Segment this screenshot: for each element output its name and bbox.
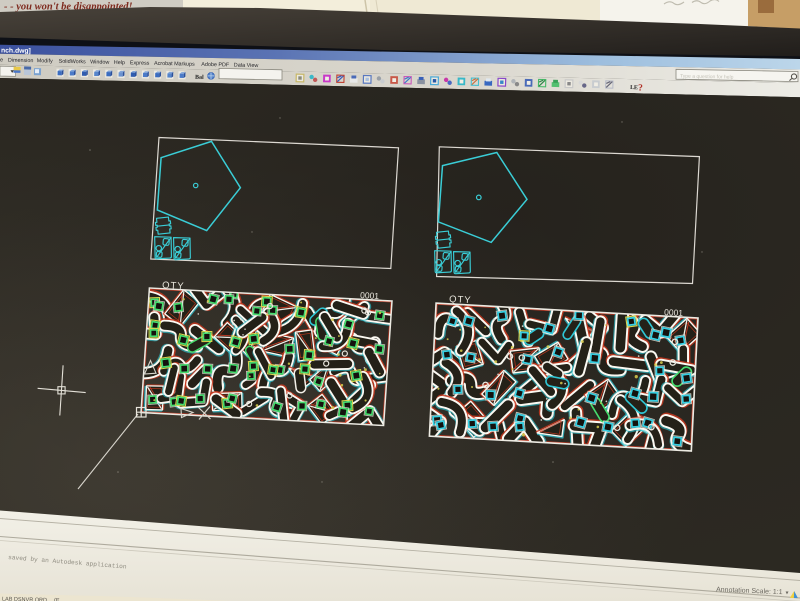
- svg-text:nch.dwg]: nch.dwg]: [1, 47, 31, 55]
- svg-text:Bal: Bal: [195, 75, 204, 81]
- svg-text:Express: Express: [130, 60, 150, 66]
- svg-text:Type a question for help: Type a question for help: [680, 74, 734, 81]
- svg-text:SolidWorks: SolidWorks: [59, 59, 87, 66]
- svg-text:e: e: [0, 57, 3, 63]
- svg-text:Adobe PDF: Adobe PDF: [201, 62, 230, 69]
- svg-text:Window: Window: [90, 59, 109, 65]
- svg-text:?: ?: [638, 84, 643, 94]
- svg-text:Dimension: Dimension: [8, 58, 34, 65]
- svg-text:LAB DSNVR ORD… (E…: LAB DSNVR ORD… (E…: [2, 597, 65, 601]
- svg-text:Modify: Modify: [37, 58, 53, 64]
- svg-text:Data View: Data View: [234, 63, 259, 70]
- svg-text:Help: Help: [114, 60, 125, 66]
- svg-text:I.E: I.E: [630, 85, 638, 91]
- svg-text:Acrobat Markups: Acrobat Markups: [154, 61, 195, 68]
